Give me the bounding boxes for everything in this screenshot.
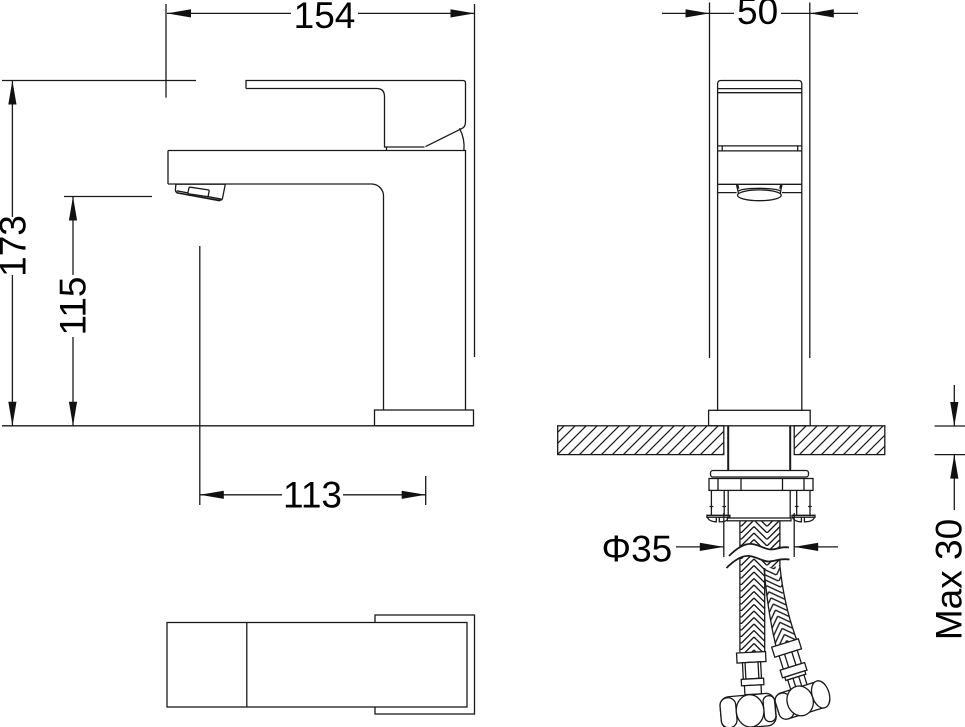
svg-text:173: 173	[0, 215, 34, 277]
svg-text:Max 30: Max 30	[929, 519, 965, 640]
svg-text:113: 113	[283, 475, 342, 516]
svg-text:115: 115	[53, 277, 94, 336]
svg-text:50: 50	[737, 0, 778, 32]
svg-text:154: 154	[294, 0, 356, 36]
svg-text:Φ35: Φ35	[602, 529, 673, 570]
